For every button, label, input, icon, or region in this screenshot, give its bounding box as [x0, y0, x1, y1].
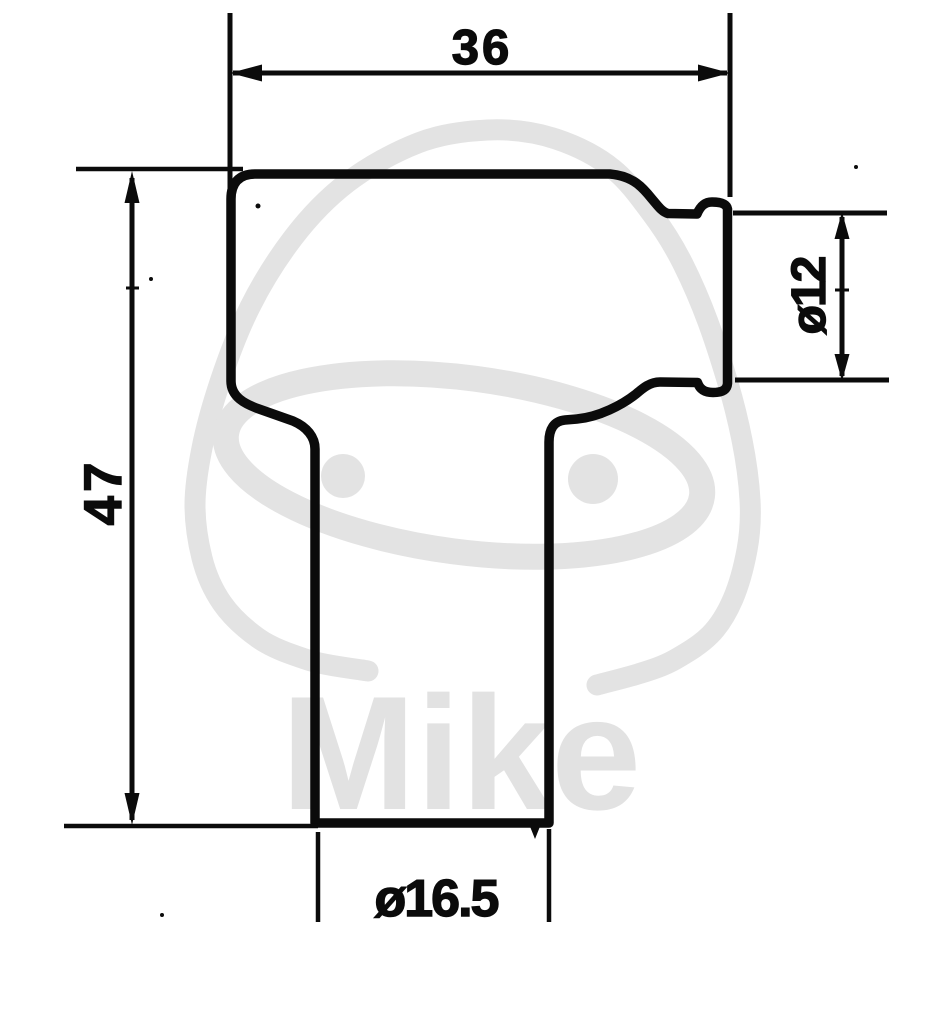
svg-text:ø16.5: ø16.5 — [375, 870, 499, 928]
svg-text:Mike: Mike — [281, 663, 641, 844]
svg-text:47: 47 — [74, 459, 133, 526]
svg-text:36: 36 — [452, 21, 513, 75]
svg-text:ø12: ø12 — [783, 257, 836, 334]
